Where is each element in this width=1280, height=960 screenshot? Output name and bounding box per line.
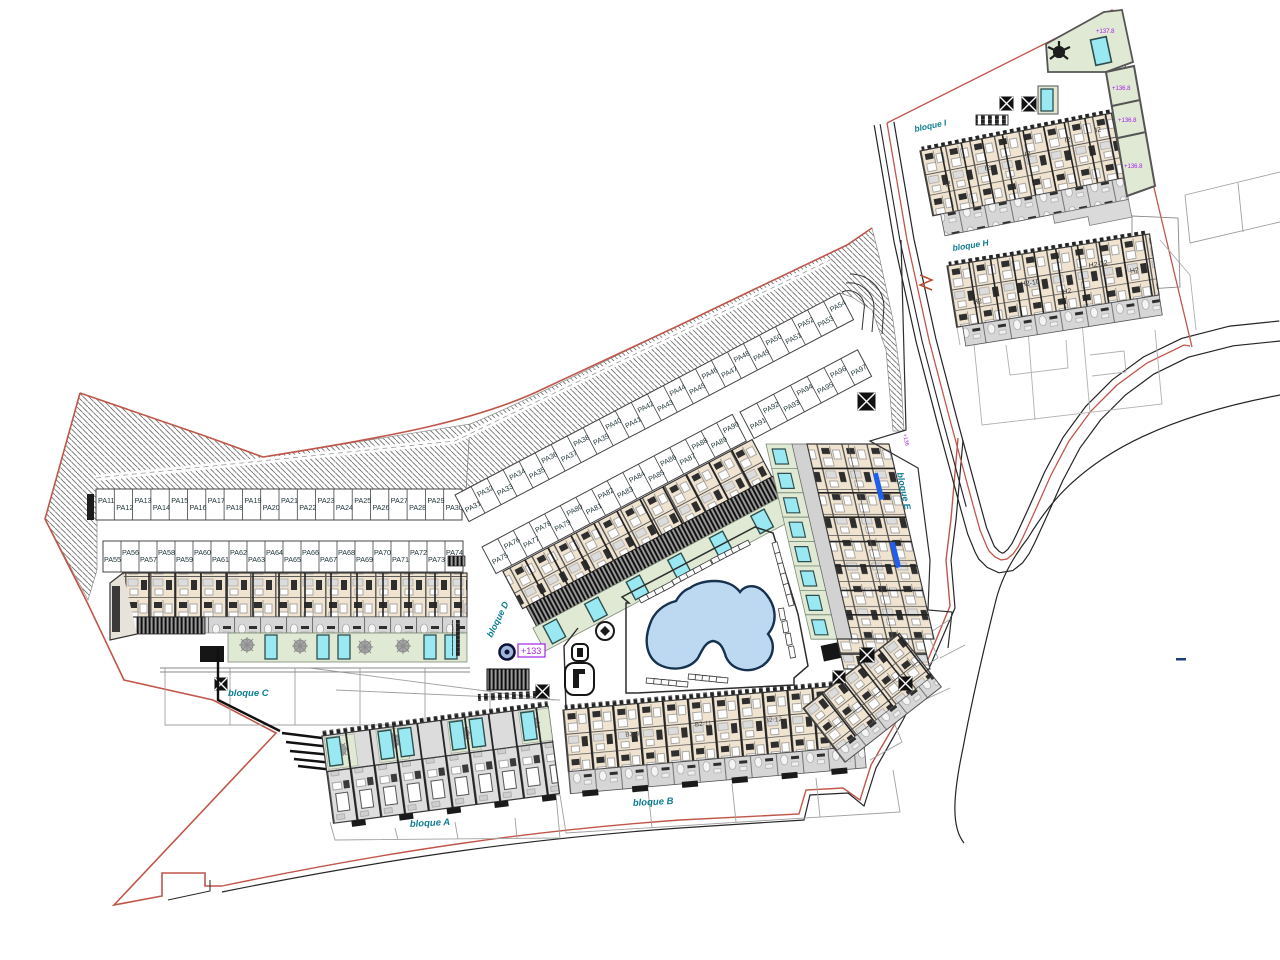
svg-text:+136.8: +136.8 xyxy=(1118,118,1137,124)
svg-text:PA27: PA27 xyxy=(391,496,408,505)
svg-text:PA12: PA12 xyxy=(116,503,133,512)
svg-text:PA29: PA29 xyxy=(427,496,444,505)
svg-text:PA20: PA20 xyxy=(263,503,280,512)
svg-text:B2-11: B2-11 xyxy=(695,720,713,728)
svg-text:PA28: PA28 xyxy=(409,503,426,512)
svg-text:PA11: PA11 xyxy=(98,496,115,505)
svg-text:PA67: PA67 xyxy=(320,555,337,564)
svg-text:PA60: PA60 xyxy=(194,548,211,557)
svg-text:H2: H2 xyxy=(1130,267,1140,275)
svg-text:PA56: PA56 xyxy=(122,548,139,557)
svg-text:PA57: PA57 xyxy=(140,555,157,564)
svg-text:PA59: PA59 xyxy=(176,555,193,564)
svg-text:PA19: PA19 xyxy=(244,496,261,505)
svg-text:PA14: PA14 xyxy=(153,503,170,512)
svg-text:PA72: PA72 xyxy=(410,548,427,557)
svg-text:+136.8: +136.8 xyxy=(1112,86,1131,92)
svg-text:PA55: PA55 xyxy=(104,555,121,564)
svg-text:PA65: PA65 xyxy=(284,555,301,564)
svg-text:PA13: PA13 xyxy=(135,496,152,505)
svg-text:PA70: PA70 xyxy=(374,548,391,557)
svg-text:bloque A: bloque A xyxy=(410,817,451,830)
svg-text:B2-3: B2-3 xyxy=(625,730,640,738)
svg-text:bloque C: bloque C xyxy=(228,688,269,699)
svg-text:H2: H2 xyxy=(973,298,983,306)
svg-text:PA16: PA16 xyxy=(190,503,207,512)
svg-text:PA24: PA24 xyxy=(336,503,353,512)
svg-text:+133: +133 xyxy=(521,646,541,656)
svg-text:PA62: PA62 xyxy=(230,548,247,557)
svg-text:+137.8: +137.8 xyxy=(1096,29,1115,35)
svg-text:PA18: PA18 xyxy=(226,503,243,512)
svg-text:PA73: PA73 xyxy=(428,555,445,564)
svg-text:PA71: PA71 xyxy=(392,555,409,564)
svg-text:PA69: PA69 xyxy=(356,555,373,564)
svg-text:PA63: PA63 xyxy=(248,555,265,564)
svg-text:H2: H2 xyxy=(1062,288,1072,296)
svg-text:PA22: PA22 xyxy=(299,503,316,512)
svg-text:PA26: PA26 xyxy=(373,503,390,512)
svg-text:PA68: PA68 xyxy=(338,548,355,557)
svg-text:PA23: PA23 xyxy=(318,496,335,505)
svg-text:PA21: PA21 xyxy=(281,496,298,505)
svg-text:PA64: PA64 xyxy=(266,548,283,557)
svg-text:PA66: PA66 xyxy=(302,548,319,557)
svg-text:PA17: PA17 xyxy=(208,496,225,505)
svg-text:+136.8: +136.8 xyxy=(1124,164,1143,170)
svg-text:PA61: PA61 xyxy=(212,555,229,564)
svg-text:PA25: PA25 xyxy=(354,496,371,505)
svg-text:PA58: PA58 xyxy=(158,548,175,557)
svg-text:bloque B: bloque B xyxy=(633,796,674,809)
svg-text:PA15: PA15 xyxy=(171,496,188,505)
